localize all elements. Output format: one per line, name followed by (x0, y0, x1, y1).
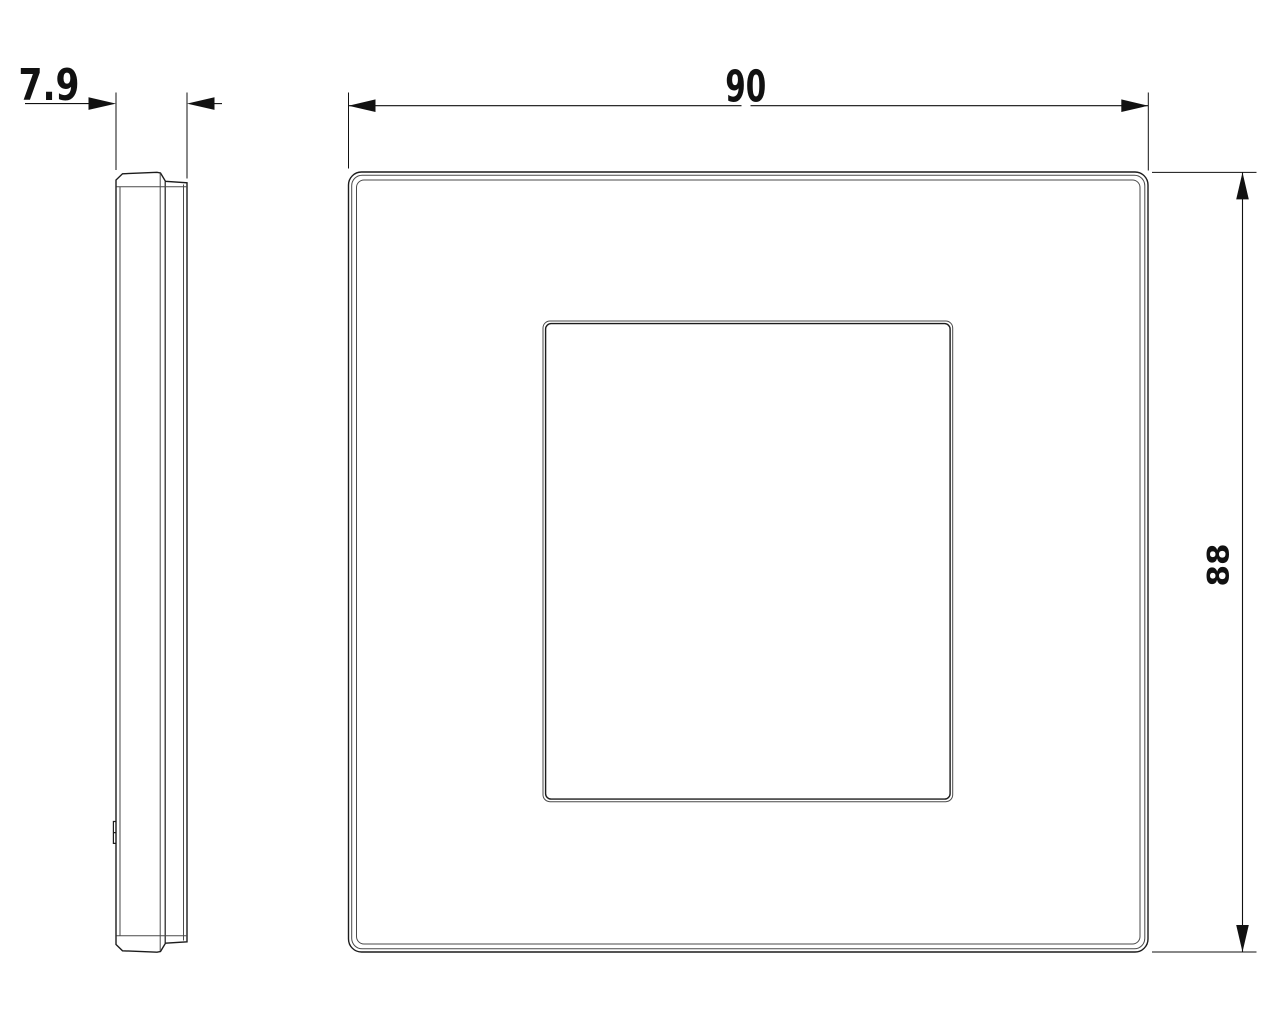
technical-drawing-canvas: 7.9 90 88 (0, 0, 1280, 1024)
dimension-height: 88 (1152, 172, 1257, 952)
side-view (113, 172, 187, 952)
dimension-width: 90 (349, 62, 1149, 171)
side-view-outline (116, 172, 187, 952)
width-arrowhead-right (1121, 99, 1148, 112)
height-arrowhead-bottom (1236, 925, 1249, 952)
front-view-aperture-outer-edge (543, 321, 953, 802)
dimension-thickness: 7.9 (19, 60, 223, 179)
height-dim-label: 88 (1202, 544, 1236, 587)
height-arrowhead-top (1236, 172, 1249, 199)
thickness-arrowhead-left (89, 97, 117, 110)
front-view-border-edge-1 (352, 175, 1145, 949)
width-dim-label: 90 (725, 62, 766, 113)
front-view-aperture (546, 324, 951, 799)
front-view-outer-border (349, 172, 1149, 952)
front-view (349, 172, 1149, 952)
thickness-arrowhead-right (187, 97, 215, 110)
front-view-border-edge-2 (357, 180, 1141, 944)
thickness-dim-label: 7.9 (19, 60, 80, 111)
width-arrowhead-left (349, 99, 376, 112)
